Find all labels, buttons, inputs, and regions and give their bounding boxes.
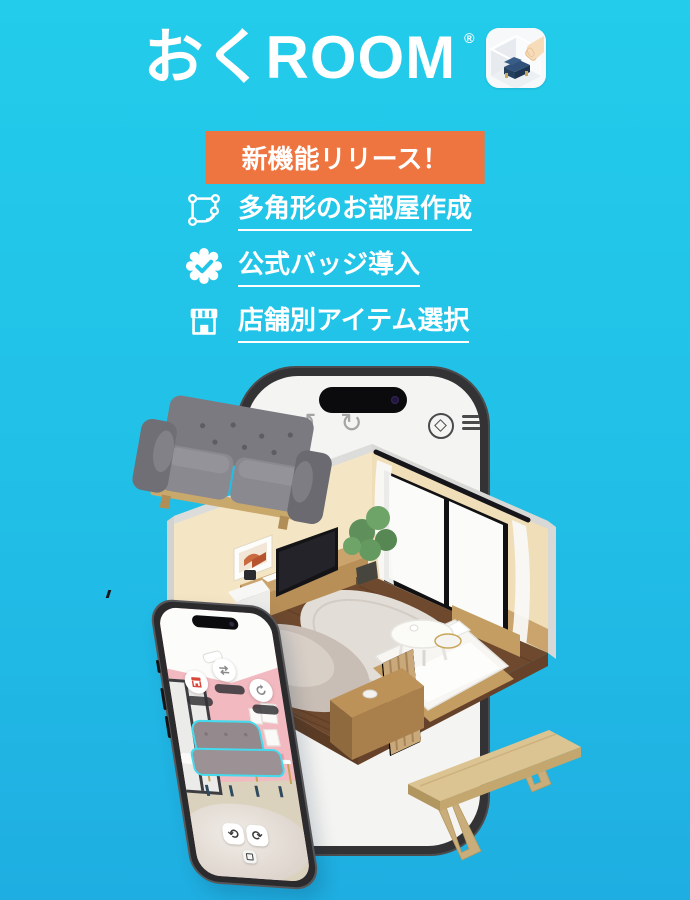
camera-dot xyxy=(391,396,399,404)
refresh-icon[interactable] xyxy=(248,678,275,703)
feature-list: 多角形のお部屋作成 公式バッジ導入 店舗別ア xyxy=(185,188,472,343)
editor-toolbar: ↺ ↻ xyxy=(246,408,480,442)
feature-polygon-room: 多角形のお部屋作成 xyxy=(185,188,472,231)
fab-label xyxy=(186,696,213,707)
rotate-right-icon[interactable]: ⟳ xyxy=(245,824,269,846)
rotate-left-icon[interactable]: ⟲ xyxy=(221,823,245,845)
mute-switch xyxy=(156,660,161,673)
promo-page: おくROOM ® 新機能リリ xyxy=(0,0,690,900)
rotate-view-icon[interactable] xyxy=(428,413,454,439)
app-logo-text: おくROOM xyxy=(144,28,457,88)
registered-mark: ® xyxy=(464,30,474,46)
volume-up-button xyxy=(160,688,166,710)
fab-label xyxy=(252,704,279,715)
storefront-icon xyxy=(185,303,223,341)
feature-label: 多角形のお部屋作成 xyxy=(238,188,472,231)
camera-dot xyxy=(229,621,235,626)
fab-label xyxy=(214,684,245,695)
curtain-right xyxy=(512,520,530,646)
selected-sofa[interactable] xyxy=(186,722,287,790)
verified-badge-icon xyxy=(185,247,223,285)
feature-label: 公式バッジ導入 xyxy=(238,244,420,287)
volume-down-button xyxy=(165,716,171,738)
menu-icon[interactable] xyxy=(462,415,480,430)
logo-row: おくROOM ® xyxy=(0,28,690,88)
app-icon xyxy=(486,28,546,88)
polygon-room-icon xyxy=(185,191,223,229)
right-wall-edge xyxy=(548,521,556,659)
wood-wainscot xyxy=(505,608,548,653)
feature-store-items: 店舗別アイテム選択 xyxy=(185,300,472,343)
feature-label: 店舗別アイテム選択 xyxy=(238,300,469,343)
undo-icon[interactable]: ↺ xyxy=(294,408,317,439)
feature-official-badge: 公式バッジ導入 xyxy=(185,244,472,287)
redo-icon[interactable]: ↻ xyxy=(340,408,363,439)
rotate-controls: ⟲ ⟳ xyxy=(221,823,269,847)
release-banner: 新機能リリース！ xyxy=(206,131,485,184)
move-icon[interactable] xyxy=(242,850,257,864)
